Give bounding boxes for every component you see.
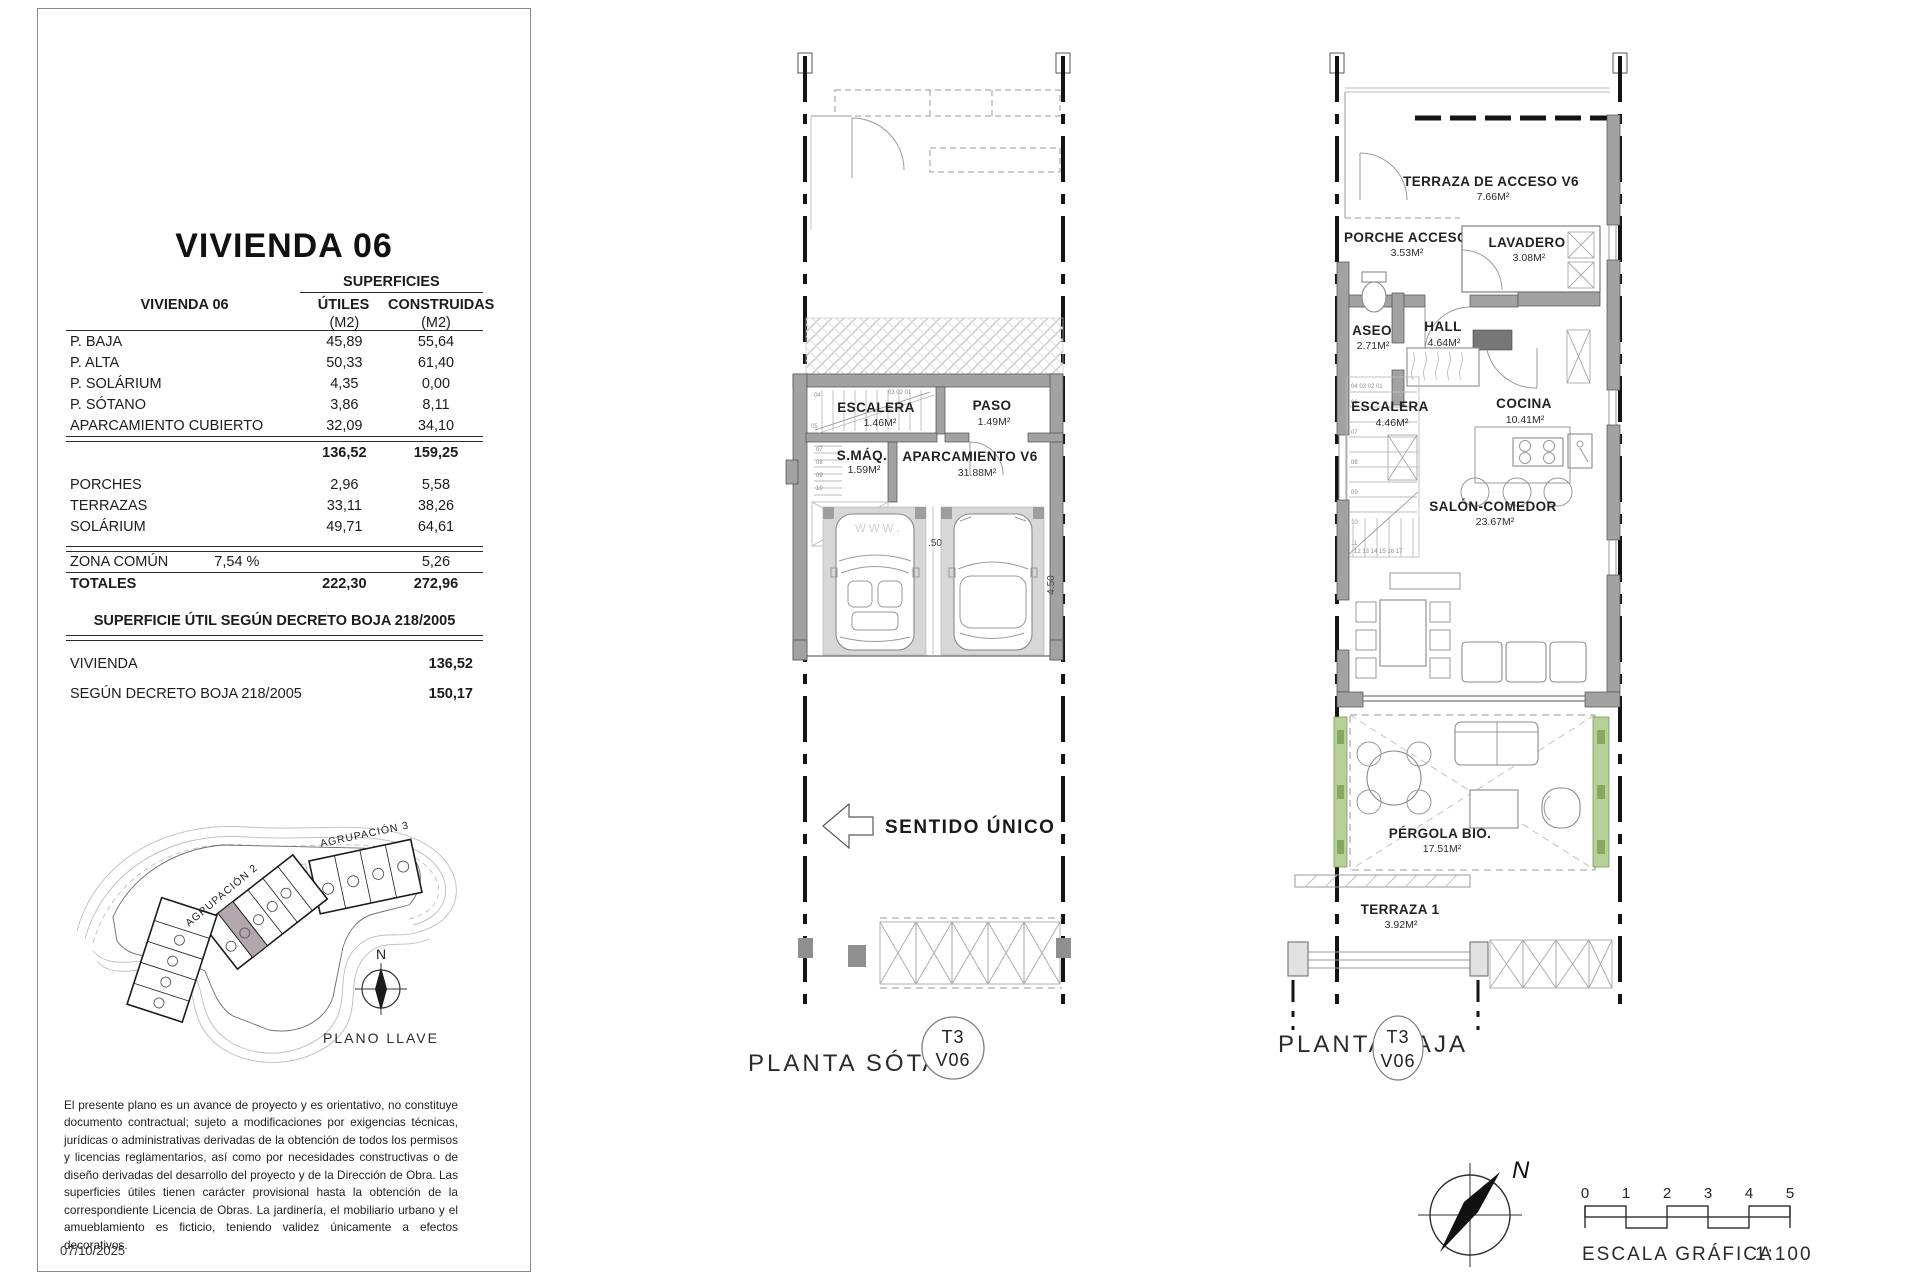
svg-text:07: 07 xyxy=(816,447,823,453)
neighbour-hatch xyxy=(806,318,1063,374)
terraza-acceso: TERRAZA DE ACCESO V6 7.66M² xyxy=(1345,88,1618,218)
svg-text:12 13 14 15 16: 12 13 14 15 16 17 xyxy=(1354,549,1403,555)
svg-text:4.46M²: 4.46M² xyxy=(1376,417,1409,429)
svg-text:TERRAZA 1: TERRAZA 1 xyxy=(1361,902,1440,917)
table-row: P. ALTA50,3361,40 xyxy=(66,352,483,373)
svg-text:03 02 01: 03 02 01 xyxy=(888,390,912,396)
room-aparcamiento: APARCAMIENTO V6 xyxy=(902,449,1037,464)
escalera-baja: 04 03 02 01 06 07 08 09 10 11 12 13 14 1… xyxy=(1347,377,1429,557)
salon-comedor: SALÓN-COMEDOR 23.67M² xyxy=(1356,499,1586,682)
svg-text:11: 11 xyxy=(1351,541,1358,547)
svg-text:04 03 02 01: 04 03 02 01 xyxy=(1351,384,1383,390)
plan-baja: TERRAZA DE ACCESO V6 7.66M² PORCHE ACCES… xyxy=(1250,30,1640,1120)
svg-text:3.53M²: 3.53M² xyxy=(1391,247,1424,259)
porche-acceso: PORCHE ACCESO 3.53M² xyxy=(1344,230,1468,259)
hall: HALL 4.64M² xyxy=(1424,319,1512,350)
svg-text:ESCALERA: ESCALERA xyxy=(1351,399,1428,414)
svg-text:04: 04 xyxy=(814,393,821,399)
decreto-header: SUPERFICIE ÚTIL SEGÚN DECRETO BOJA 218/2… xyxy=(66,613,483,635)
site-caption: PLANO LLAVE xyxy=(323,1030,439,1046)
svg-text:08: 08 xyxy=(1351,460,1358,466)
north-compass: N xyxy=(1408,1150,1538,1280)
car-sedan xyxy=(949,514,1037,650)
svg-text:3.08M²: 3.08M² xyxy=(1513,252,1546,264)
svg-text:1: 1 xyxy=(1622,1185,1630,1202)
svg-text:31.88M²: 31.88M² xyxy=(958,467,997,479)
subtotal-row: 136,52159,25 xyxy=(66,442,483,464)
sentido-unico: SENTIDO ÚNICO xyxy=(823,804,1055,848)
table-row: P. SÓTANO3,868,11 xyxy=(66,394,483,415)
decreto-block: SUPERFICIE ÚTIL SEGÚN DECRETO BOJA 218/2… xyxy=(66,613,483,705)
svg-text:ASEO: ASEO xyxy=(1352,323,1392,338)
svg-text:PORCHE ACCESO: PORCHE ACCESO xyxy=(1344,230,1468,245)
legal-disclaimer: El presente plano es un avance de proyec… xyxy=(64,1097,458,1254)
svg-text:ESCALA GRÁFICA: ESCALA GRÁFICA xyxy=(1582,1244,1774,1265)
plan-date: 07/10/2025 xyxy=(60,1243,125,1258)
svg-text:17.51M²: 17.51M² xyxy=(1423,843,1462,855)
site-block-agrupacion2 xyxy=(203,855,327,969)
table-row: SOLÁRIUM49,7164,61 xyxy=(66,516,483,537)
lavadero: LAVADERO 3.08M² xyxy=(1462,226,1600,292)
svg-text:COCINA: COCINA xyxy=(1496,396,1552,411)
svg-text:08: 08 xyxy=(816,460,823,466)
svg-text:T3: T3 xyxy=(941,1027,964,1047)
driveway-trellis xyxy=(798,918,1071,988)
svg-text:10.41M²: 10.41M² xyxy=(1506,414,1545,426)
svg-text:23.67M²: 23.67M² xyxy=(1476,516,1515,528)
table-row: TERRAZAS33,1138,26 xyxy=(66,495,483,516)
cocina: COCINA 10.41M² xyxy=(1407,330,1592,506)
graphic-scale: 0 1 2 3 4 5 ESCALA GRÁFICA 1:100 xyxy=(1570,1180,1830,1275)
baja-caption: PLANTA BAJA T3 V06 xyxy=(1278,1016,1468,1080)
plan-sheet: VIVIENDA 06 SUPERFICIES VIVIENDA 06 ÚTIL… xyxy=(0,0,1920,1280)
site-compass: N xyxy=(355,946,407,1015)
svg-text:SALÓN-COMEDOR: SALÓN-COMEDOR xyxy=(1429,499,1556,514)
sotano-caption: PLANTA SÓTANO T3 V06 xyxy=(748,1017,984,1079)
table-row: P. SOLÁRIUM4,350,00 xyxy=(66,373,483,394)
table-row-header: VIVIENDA 06 xyxy=(66,297,299,313)
room-paso: PASO xyxy=(973,398,1012,413)
svg-text:1:100: 1:100 xyxy=(1755,1244,1813,1265)
svg-text:1.49M²: 1.49M² xyxy=(978,416,1011,428)
decreto-row: SEGÚN DECRETO BOJA 218/2005150,17 xyxy=(66,683,483,705)
table-group-header: SUPERFICIES xyxy=(300,274,483,293)
street-level-outline xyxy=(811,90,1060,230)
svg-text:3: 3 xyxy=(1704,1185,1712,1202)
svg-text:4.64M²: 4.64M² xyxy=(1428,337,1461,349)
svg-text:N: N xyxy=(376,946,386,962)
svg-text:2: 2 xyxy=(1663,1185,1671,1202)
plan-sotano: 04 03 02 01 05 ESCALERA 1.46M² PASO 1.49… xyxy=(630,40,1100,1110)
svg-text:05: 05 xyxy=(811,424,818,430)
compass-north-label: N xyxy=(1512,1157,1530,1184)
unit-label: (M2) xyxy=(389,315,483,331)
site-plan: AGRUPACIÓN 3 AGRUPACIÓN 2 N PLANO LLAVE xyxy=(71,819,471,1084)
svg-text:V06: V06 xyxy=(1380,1051,1415,1071)
svg-text:4: 4 xyxy=(1745,1185,1753,1202)
svg-text:09: 09 xyxy=(1351,490,1358,496)
info-panel: VIVIENDA 06 SUPERFICIES VIVIENDA 06 ÚTIL… xyxy=(37,8,531,1272)
svg-text:LAVADERO: LAVADERO xyxy=(1489,235,1566,250)
svg-text:V06: V06 xyxy=(935,1050,970,1070)
svg-text:4.50: 4.50 xyxy=(1046,575,1057,595)
watermark: www. xyxy=(854,519,903,536)
col-utiles: ÚTILES xyxy=(299,297,388,313)
pergola: PÉRGOLA BIO. 17.51M² xyxy=(1334,715,1609,870)
svg-text:10: 10 xyxy=(816,486,823,492)
svg-text:09: 09 xyxy=(816,473,823,479)
table-row: APARCAMIENTO CUBIERTO32,0934,10 xyxy=(66,415,483,436)
svg-text:07: 07 xyxy=(1351,430,1358,436)
unit-label: (M2) xyxy=(300,315,389,331)
totales-row: TOTALES222,30272,96 xyxy=(66,573,483,595)
svg-text:7.66M²: 7.66M² xyxy=(1477,191,1510,203)
svg-text:10: 10 xyxy=(1351,520,1358,526)
room-smaq: S.MÁQ. xyxy=(837,448,887,463)
table-row: PORCHES2,965,58 xyxy=(66,474,483,495)
areas-table: SUPERFICIES VIVIENDA 06 ÚTILES CONSTRUID… xyxy=(66,273,483,595)
svg-text:T3: T3 xyxy=(1386,1027,1409,1047)
svg-text:1.46M²: 1.46M² xyxy=(864,417,897,429)
svg-text:0: 0 xyxy=(1581,1185,1589,1202)
svg-text:.50: .50 xyxy=(928,538,942,549)
zona-comun-row: ZONA COMÚN7,54 % 5,26 xyxy=(66,552,483,572)
svg-text:TERRAZA DE ACCESO V6: TERRAZA DE ACCESO V6 xyxy=(1403,174,1579,189)
window-wall xyxy=(1337,692,1620,707)
svg-text:5: 5 xyxy=(1786,1185,1794,1202)
unit-title: VIVIENDA 06 xyxy=(38,227,530,266)
aseo: ASEO 2.71M² xyxy=(1352,272,1392,352)
col-construidas: CONSTRUIDAS xyxy=(388,297,483,313)
room-escalera: ESCALERA xyxy=(837,400,914,415)
svg-text:SENTIDO ÚNICO: SENTIDO ÚNICO xyxy=(885,816,1055,838)
svg-text:1.59M²: 1.59M² xyxy=(848,464,881,476)
table-row: P. BAJA45,8955,64 xyxy=(66,331,483,352)
svg-text:3.92M²: 3.92M² xyxy=(1385,919,1418,931)
decreto-row: VIVIENDA136,52 xyxy=(66,653,483,675)
svg-text:HALL: HALL xyxy=(1424,319,1462,334)
svg-text:PÉRGOLA BIO.: PÉRGOLA BIO. xyxy=(1389,826,1492,841)
svg-text:2.71M²: 2.71M² xyxy=(1357,340,1390,352)
